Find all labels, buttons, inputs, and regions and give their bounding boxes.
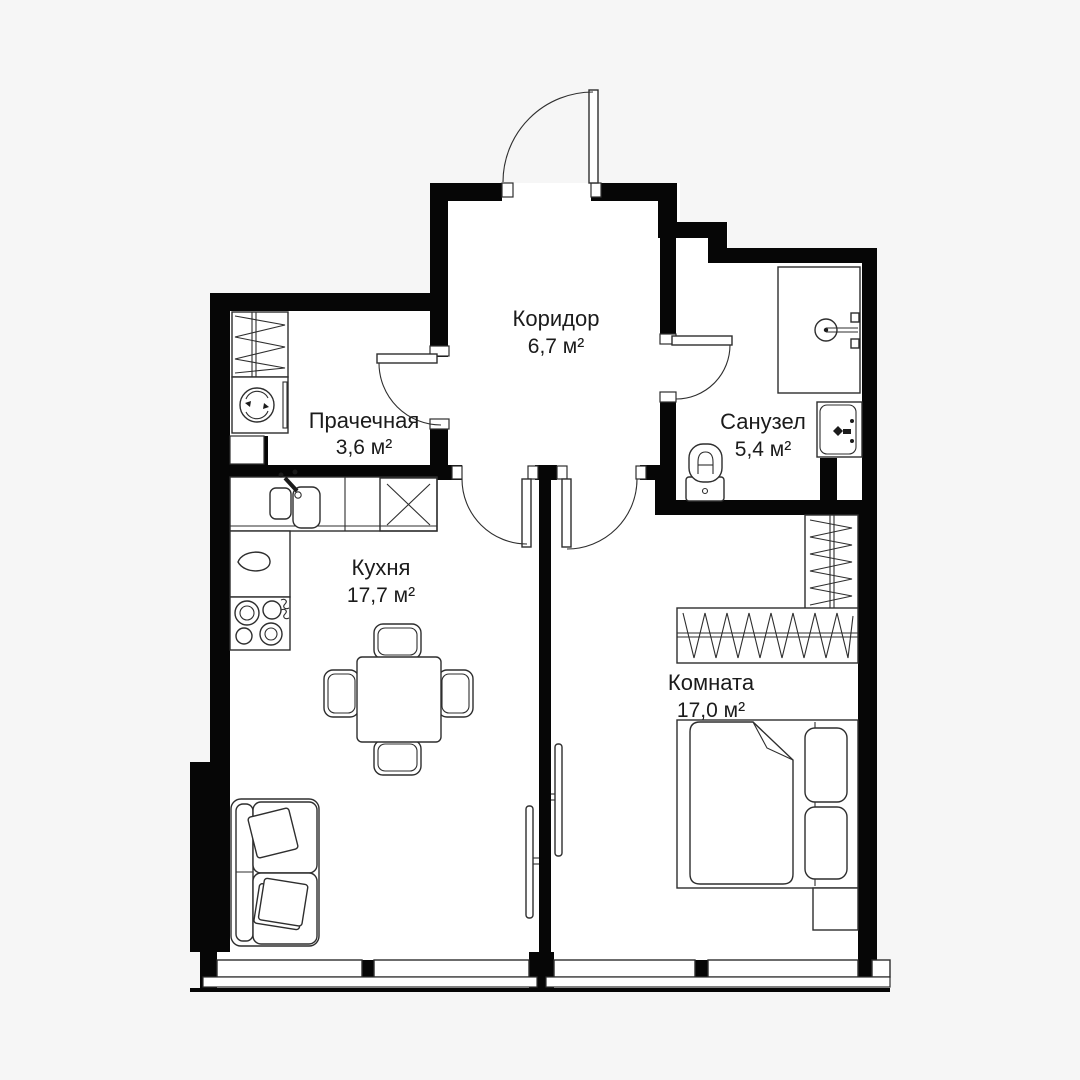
window-sill bbox=[546, 977, 890, 987]
room-name: Прачечная bbox=[309, 408, 420, 433]
room-area: 17,7 м² bbox=[347, 584, 415, 607]
window bbox=[872, 960, 890, 977]
wardrobe-vertical bbox=[805, 515, 858, 610]
nightstand bbox=[813, 888, 858, 930]
washing-machine bbox=[232, 377, 288, 433]
room-name: Санузел bbox=[720, 409, 806, 434]
drying-rack bbox=[232, 312, 288, 377]
sofa bbox=[231, 799, 319, 946]
room-name: Комната bbox=[668, 670, 755, 695]
bed bbox=[677, 720, 858, 888]
room-area: 17,0 м² bbox=[677, 699, 745, 722]
toilet bbox=[686, 444, 724, 501]
window bbox=[708, 960, 858, 977]
room-area: 3,6 м² bbox=[336, 436, 392, 459]
cooktop bbox=[230, 597, 290, 650]
window bbox=[554, 960, 695, 977]
window bbox=[217, 960, 362, 977]
bathroom-sink bbox=[817, 402, 862, 457]
floor-plan: Коридор 6,7 м² Прачечная 3,6 м² Санузел … bbox=[0, 0, 1080, 1080]
room-area: 5,4 м² bbox=[735, 438, 791, 461]
window bbox=[374, 960, 529, 977]
room-name: Коридор bbox=[513, 306, 600, 331]
window-sill bbox=[203, 977, 537, 987]
wardrobe-horizontal bbox=[677, 608, 858, 663]
room-name: Кухня bbox=[352, 555, 411, 580]
room-area: 6,7 м² bbox=[528, 335, 584, 358]
